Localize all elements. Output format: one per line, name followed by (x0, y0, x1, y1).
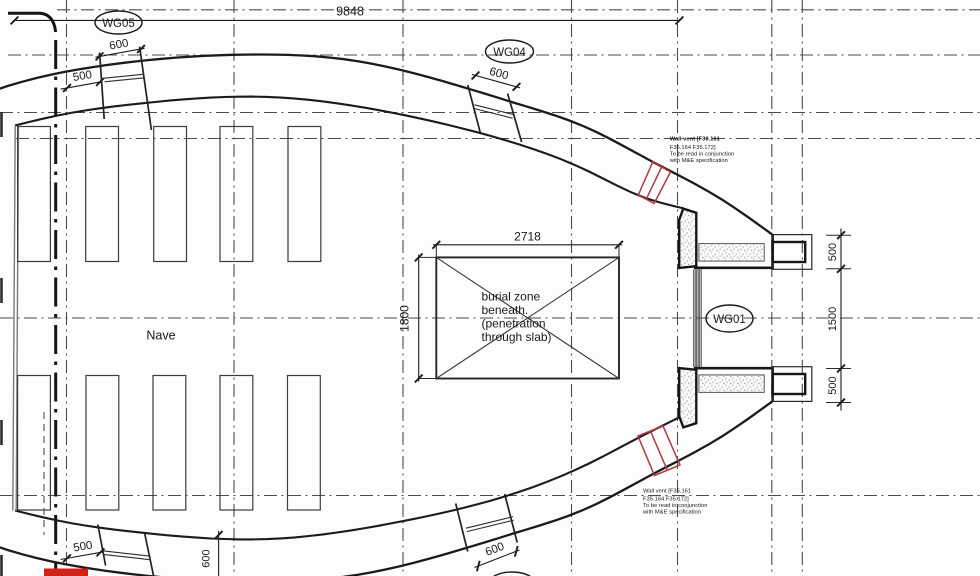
svg-text:600: 600 (201, 549, 213, 567)
svg-text:F35.164 F35.172]: F35.164 F35.172] (643, 496, 689, 502)
svg-text:To be read in conjunction: To be read in conjunction (643, 503, 707, 509)
svg-text:beneath.: beneath. (482, 303, 529, 317)
svg-text:WG01: WG01 (713, 314, 746, 326)
svg-text:To be read in conjunction: To be read in conjunction (670, 152, 734, 158)
svg-text:1800: 1800 (398, 305, 412, 332)
svg-text:Nave: Nave (146, 329, 175, 343)
svg-text:with M&E specification: with M&E specification (642, 510, 701, 516)
svg-text:9848: 9848 (336, 5, 364, 19)
svg-text:burial zone: burial zone (482, 290, 541, 304)
svg-text:WG04: WG04 (493, 47, 526, 59)
svg-text:500: 500 (827, 243, 839, 261)
svg-text:(penetration: (penetration (482, 317, 546, 331)
svg-text:WG05: WG05 (102, 18, 135, 30)
svg-text:2718: 2718 (514, 230, 541, 244)
svg-text:Wall vent [F35.161: Wall vent [F35.161 (643, 489, 691, 495)
svg-text:1500: 1500 (827, 307, 839, 331)
svg-text:500: 500 (827, 376, 839, 394)
svg-text:F35.164 F35.172]: F35.164 F35.172] (670, 145, 716, 151)
svg-text:through slab): through slab) (482, 330, 552, 344)
svg-text:with M&E specification: with M&E specification (669, 158, 728, 164)
svg-text:Wall vent [F30.161: Wall vent [F30.161 (670, 136, 721, 142)
